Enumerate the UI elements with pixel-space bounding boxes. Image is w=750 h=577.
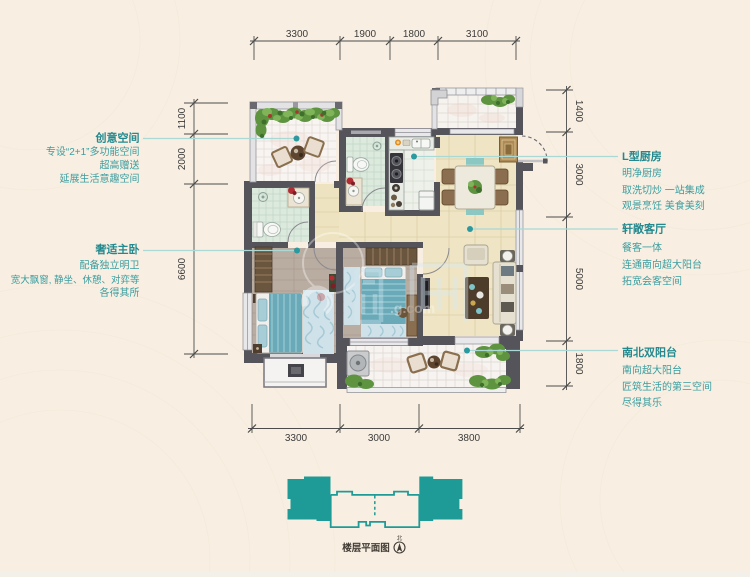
svg-text:奢适主卧: 奢适主卧 bbox=[95, 242, 140, 256]
svg-text:3300: 3300 bbox=[285, 433, 308, 444]
svg-text:3000: 3000 bbox=[368, 433, 391, 444]
svg-text:L型厨房: L型厨房 bbox=[622, 149, 662, 163]
svg-text:3300: 3300 bbox=[286, 29, 309, 40]
svg-text:1100: 1100 bbox=[177, 107, 188, 129]
svg-text:南向超大阳台: 南向超大阳台 bbox=[622, 364, 682, 377]
svg-text:拓宽会客空间: 拓宽会客空间 bbox=[622, 275, 682, 288]
svg-text:尽得其乐: 尽得其乐 bbox=[622, 397, 662, 409]
svg-text:超高赠送: 超高赠送 bbox=[100, 159, 140, 172]
svg-text:创意空间: 创意空间 bbox=[95, 131, 140, 145]
svg-text:2000: 2000 bbox=[177, 147, 188, 170]
svg-text:1400: 1400 bbox=[573, 100, 584, 123]
svg-text:5000: 5000 bbox=[573, 268, 584, 291]
svg-text:南北双阳台: 南北双阳台 bbox=[622, 345, 677, 359]
svg-text:1800: 1800 bbox=[403, 29, 426, 40]
svg-text:1800: 1800 bbox=[573, 352, 584, 375]
svg-text:3000: 3000 bbox=[573, 163, 584, 186]
svg-text:明净厨房: 明净厨房 bbox=[622, 167, 662, 180]
svg-text:.g.com: .g.com bbox=[390, 300, 435, 316]
svg-text:专设“2+1”多功能空间: 专设“2+1”多功能空间 bbox=[46, 145, 140, 158]
svg-text:轩敞客厅: 轩敞客厅 bbox=[622, 222, 666, 236]
svg-text:匠筑生活的第三空间: 匠筑生活的第三空间 bbox=[622, 380, 712, 393]
svg-text:延展生活意趣空间: 延展生活意趣空间 bbox=[60, 172, 140, 185]
svg-text:3100: 3100 bbox=[466, 29, 489, 40]
svg-text:连通南向超大阳台: 连通南向超大阳台 bbox=[622, 258, 702, 271]
svg-text:观景烹饪 美食美刻: 观景烹饪 美食美刻 bbox=[622, 199, 705, 212]
svg-text:取洗切炒 一站集成: 取洗切炒 一站集成 bbox=[622, 184, 705, 197]
svg-text:1900: 1900 bbox=[354, 29, 377, 40]
svg-text:北: 北 bbox=[397, 534, 403, 542]
svg-text:宽大飘窗, 静坐、休憩、对弈等: 宽大飘窗, 静坐、休憩、对弈等 bbox=[11, 274, 140, 286]
svg-text:3800: 3800 bbox=[458, 433, 481, 444]
svg-text:楼层平面图: 楼层平面图 bbox=[342, 542, 390, 554]
svg-text:6600: 6600 bbox=[177, 257, 188, 280]
svg-text:各得其所: 各得其所 bbox=[100, 286, 140, 299]
svg-text:配备独立明卫: 配备独立明卫 bbox=[80, 259, 140, 272]
svg-text:餐客一体: 餐客一体 bbox=[622, 241, 662, 254]
